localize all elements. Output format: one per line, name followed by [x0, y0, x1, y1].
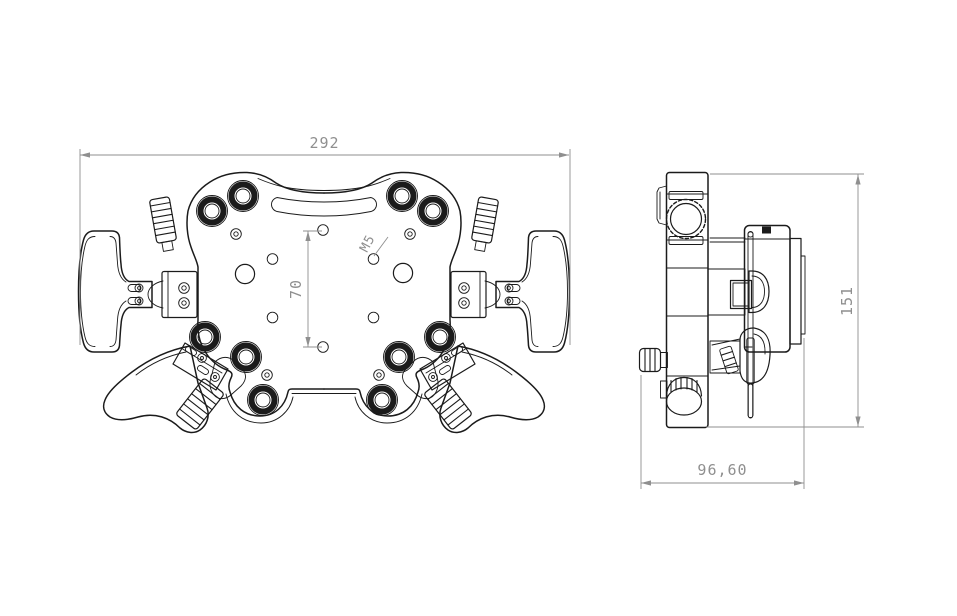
dim-mount-spacing: 70	[287, 231, 322, 347]
screw-hole	[231, 229, 242, 240]
mount-hole	[267, 312, 278, 323]
hub-stack	[745, 226, 806, 353]
clutch-paddle-right	[403, 343, 545, 432]
button	[197, 196, 228, 227]
technical-drawing-sheet: 292 70 M5 151 96,60	[0, 0, 957, 616]
dimension-text-overall-height: 151	[838, 286, 856, 316]
dimension-text-overall-width: 292	[309, 134, 339, 152]
side-thumb-knob	[640, 349, 668, 372]
mount-hole	[318, 225, 329, 236]
boss-lines	[710, 238, 745, 242]
dimension-text-thread: M5	[357, 232, 379, 255]
through-hole	[235, 264, 254, 283]
dim-overall-height: 151	[706, 174, 864, 427]
side-encoder-top	[667, 192, 706, 245]
dimension-text-overall-depth: 96,60	[697, 461, 747, 479]
screw-hole	[374, 370, 385, 381]
drawing-canvas: 292 70 M5 151 96,60	[0, 0, 957, 616]
button	[425, 322, 456, 353]
button	[248, 385, 279, 416]
dimension-text-mount-spacing: 70	[287, 279, 305, 299]
dim-overall-width: 292	[80, 134, 570, 345]
button	[228, 181, 259, 212]
shift-paddle-left	[79, 231, 198, 352]
dim-thread-callout: M5	[357, 232, 388, 256]
side-view	[640, 173, 806, 428]
clutch-paddle-left	[104, 343, 246, 432]
button	[367, 385, 398, 416]
button	[384, 342, 415, 373]
mount-hole	[368, 312, 379, 323]
shift-paddle-right	[451, 231, 570, 352]
button	[418, 196, 449, 227]
front-view	[79, 172, 570, 432]
button	[231, 342, 262, 373]
mount-hole	[267, 254, 278, 265]
side-paddle-upper	[731, 271, 770, 313]
top-slot	[271, 198, 376, 217]
hub-label-mark	[762, 227, 771, 234]
thumb-encoder-right	[470, 197, 499, 253]
screw-hole	[405, 229, 416, 240]
side-paddle-blade	[747, 232, 754, 419]
side-tab-top	[657, 186, 667, 225]
thumb-encoder-left	[149, 197, 178, 253]
button	[387, 181, 418, 212]
through-hole	[393, 263, 412, 282]
screw-hole	[262, 370, 273, 381]
